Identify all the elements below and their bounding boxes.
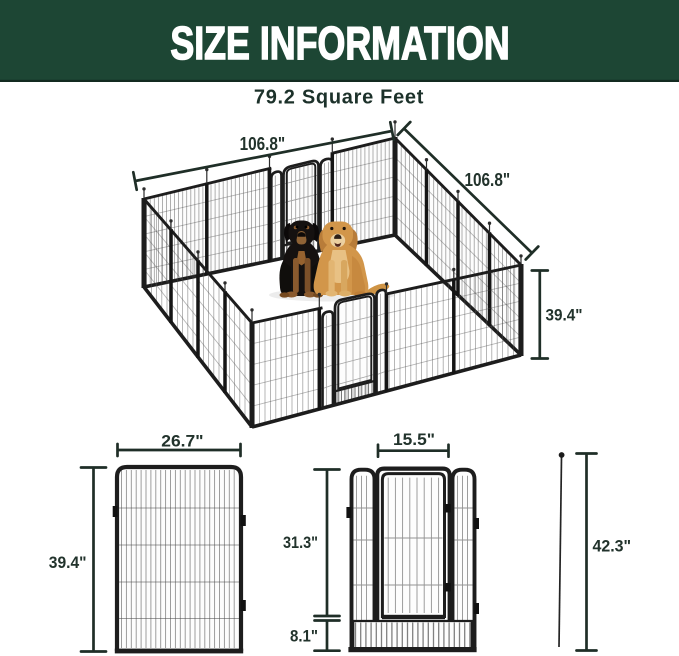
svg-text:106.8": 106.8" bbox=[240, 133, 286, 154]
svg-text:8.1": 8.1" bbox=[290, 628, 318, 646]
svg-text:42.3": 42.3" bbox=[593, 538, 632, 556]
svg-text:31.3": 31.3" bbox=[283, 534, 318, 552]
svg-text:79.2 Square Feet: 79.2 Square Feet bbox=[254, 87, 424, 109]
svg-text:26.7": 26.7" bbox=[161, 433, 203, 451]
svg-text:39.4": 39.4" bbox=[546, 307, 583, 325]
svg-text:SIZE INFORMATION: SIZE INFORMATION bbox=[170, 16, 509, 69]
svg-text:15.5": 15.5" bbox=[393, 431, 435, 449]
svg-text:106.8": 106.8" bbox=[465, 169, 511, 190]
svg-text:39.4": 39.4" bbox=[49, 554, 87, 572]
